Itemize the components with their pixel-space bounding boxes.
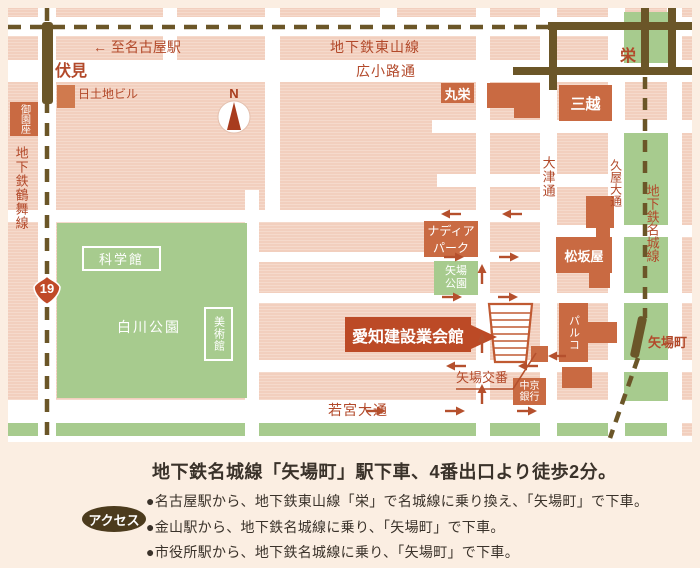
access-badge: アクセス <box>82 506 146 532</box>
sakae-station-bar-3 <box>549 22 557 90</box>
route-19-shield: 19 <box>34 276 60 305</box>
access-badge-label: アクセス <box>88 510 139 529</box>
access-heading: 地下鉄名城線「矢場町」駅下車、4番出口より徒歩2分。 <box>152 458 617 484</box>
meijo-line-dashed-south <box>610 358 638 438</box>
access-item-2: ●金山駅から、地下鉄名城線に乗り、「矢場町」で下車。 <box>146 517 505 537</box>
access-item-3: ●市役所駅から、地下鉄名城線に乗り、「矢場町」で下車。 <box>146 542 519 562</box>
compass-n-label: N <box>229 86 238 101</box>
sakae-station-bar-4 <box>641 8 649 75</box>
fushimi-station-marker <box>42 22 53 104</box>
one-way-arrows <box>366 210 566 416</box>
route-19-number: 19 <box>40 281 54 296</box>
sakae-station-bar-2 <box>513 67 692 75</box>
sakae-station-bar-5 <box>668 8 676 75</box>
kaikan-building <box>489 304 532 362</box>
compass: N <box>218 86 250 133</box>
yabacho-station-marker <box>630 316 648 359</box>
access-item-1: ●名古屋駅から、地下鉄東山線「栄」で名城線に乗り換え、「矢場町」で下車。 <box>146 491 648 511</box>
